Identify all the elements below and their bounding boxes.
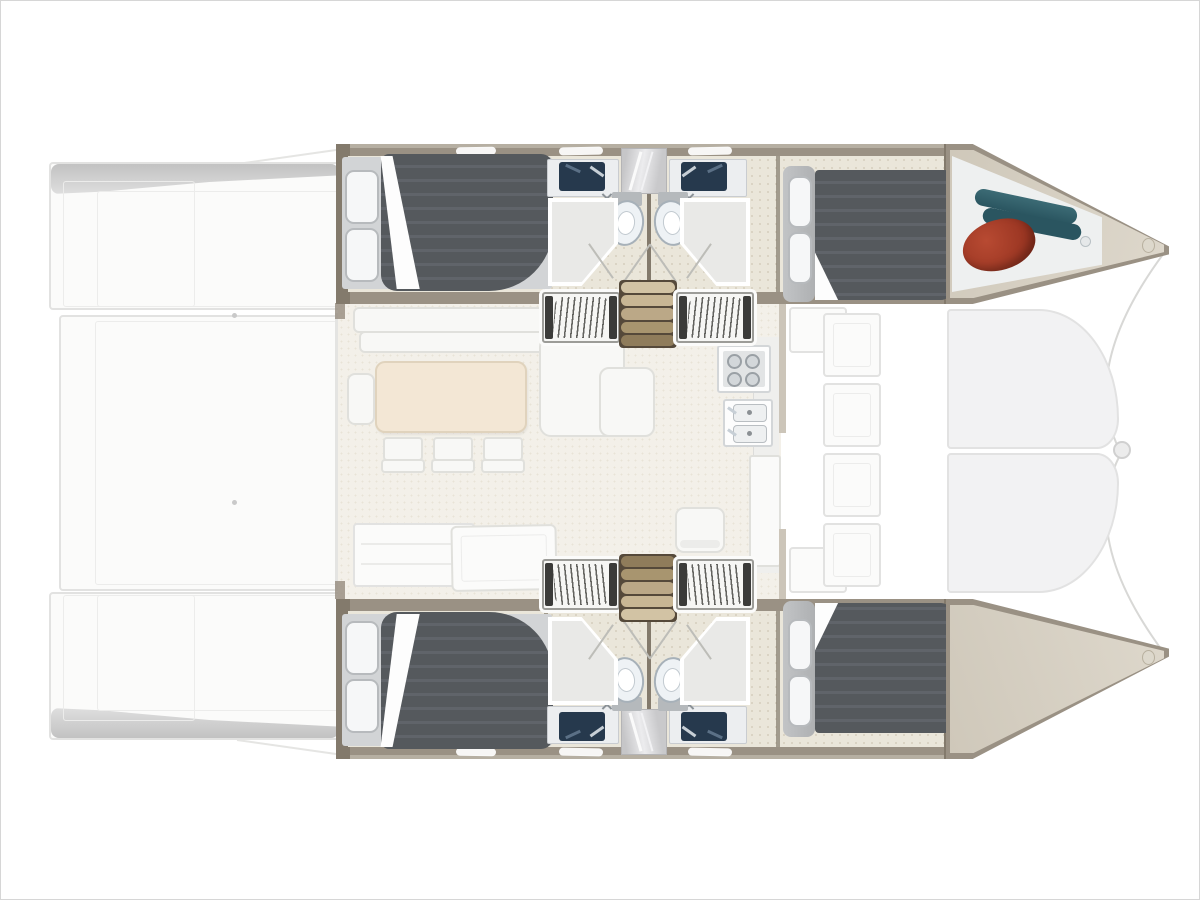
toilet-bowl: [615, 210, 636, 236]
salon-door-track: [335, 313, 338, 589]
sink: [559, 712, 605, 741]
sink: [681, 712, 727, 741]
bow-cargo: [946, 144, 1169, 304]
sink-highlight: [565, 730, 581, 739]
salon-wall-stub-top: [335, 303, 345, 319]
stair-tread: [621, 295, 675, 306]
stair-tread: [621, 335, 675, 346]
pillow: [345, 228, 379, 282]
hull-lower: [336, 599, 1169, 759]
stair-tread: [621, 569, 675, 580]
step-cap: [609, 296, 617, 339]
sink-drain: [747, 410, 752, 415]
pillow: [788, 619, 812, 671]
sink-highlight: [707, 164, 723, 173]
forward-cabin-bed: [776, 144, 956, 304]
faucet: [590, 166, 605, 178]
hull-upper: [336, 144, 1169, 304]
sink-highlight: [565, 164, 581, 173]
duvet: [815, 170, 951, 300]
toilet-bowl: [661, 210, 682, 236]
step-cap: [545, 296, 553, 339]
mirror-streak: [629, 712, 643, 751]
dining-chair: [433, 437, 473, 473]
door-swing: [649, 621, 677, 660]
mirror-streak: [641, 151, 654, 190]
mirror-streak: [629, 151, 643, 190]
faucet: [682, 726, 697, 738]
salon-single-seat: [675, 507, 725, 553]
step-cap: [679, 563, 687, 606]
wooden-staircase: [619, 280, 677, 348]
step-cap: [743, 296, 751, 339]
aft-cabin-bed: [336, 599, 556, 759]
pillow: [788, 675, 812, 727]
bow: [946, 599, 1169, 759]
step-louvres: [687, 297, 744, 338]
dining-chair: [483, 437, 523, 473]
companionway-set-lower: [542, 558, 750, 622]
bow-tip-fitting: [1142, 650, 1155, 665]
stove-burner: [745, 354, 760, 369]
sink-drain: [747, 431, 752, 436]
louvred-steps-left: [542, 292, 620, 343]
pillow: [345, 679, 379, 733]
step-louvres: [553, 297, 610, 338]
chair-seat: [483, 437, 523, 461]
bow-tip-fitting: [1142, 238, 1155, 253]
companionway-set-upper: [542, 280, 750, 344]
stove-burner: [745, 372, 760, 387]
chair-back: [381, 459, 425, 473]
chair-seat: [383, 437, 423, 461]
chair-seat: [433, 437, 473, 461]
stair-tread: [621, 582, 675, 593]
salon: [1, 1, 1200, 900]
sink-highlight: [707, 730, 723, 739]
mirror-streak: [641, 712, 654, 751]
wooden-staircase: [619, 554, 677, 622]
duvet: [815, 603, 951, 733]
bow: [946, 144, 1169, 304]
galley-sink-unit: [723, 399, 773, 447]
louvred-steps-right: [676, 292, 754, 343]
step-cap: [609, 563, 617, 606]
step-louvres: [553, 564, 610, 605]
pillow: [345, 170, 379, 224]
galley-stove: [717, 345, 771, 393]
door-swing: [623, 621, 651, 660]
louvred-steps-right: [676, 559, 754, 610]
galley-cabinet: [749, 455, 781, 567]
faucet: [590, 726, 605, 738]
mirror-column: [621, 148, 667, 194]
dining-bench: [347, 373, 375, 425]
stair-tread: [621, 308, 675, 319]
gear-end-cap: [1080, 236, 1091, 247]
step-cap: [743, 563, 751, 606]
salon-sofa-back: [353, 307, 547, 333]
pillow: [788, 176, 812, 228]
aft-cabin-bed: [336, 144, 556, 304]
sink: [559, 162, 605, 191]
seat-back-line: [680, 540, 720, 548]
step-cap: [679, 296, 687, 339]
sink: [681, 162, 727, 191]
toilet-bowl: [661, 667, 682, 693]
stair-tread: [621, 609, 675, 620]
door-swing: [623, 244, 651, 283]
stove-burner: [727, 372, 742, 387]
salon-forward-wall-upper: [779, 303, 786, 433]
stair-tread: [621, 322, 675, 333]
chair-back: [431, 459, 475, 473]
floor-plan-canvas: [0, 0, 1200, 900]
step-louvres: [687, 564, 744, 605]
pillow: [788, 232, 812, 284]
pillow: [345, 621, 379, 675]
stair-tread: [621, 556, 675, 567]
door-swing: [649, 244, 677, 283]
salon-sofa-seat: [359, 331, 565, 353]
bow-deck-inner: [950, 605, 1164, 753]
forward-cabin-bed: [776, 599, 956, 759]
faucet: [682, 166, 697, 178]
chair-back: [481, 459, 525, 473]
salon-chaise-extension: [599, 367, 655, 437]
mirror-column: [621, 709, 667, 755]
salon-forward-wall-lower: [779, 529, 786, 599]
salon-wall-stub-bottom: [335, 581, 345, 599]
bathroom: [544, 599, 754, 759]
stair-tread: [621, 596, 675, 607]
step-cap: [545, 563, 553, 606]
shower-floor: [552, 202, 614, 282]
stove-burner: [727, 354, 742, 369]
louvred-steps-left: [542, 559, 620, 610]
dining-table: [375, 361, 527, 433]
toilet-bowl: [615, 667, 636, 693]
dining-chair: [383, 437, 423, 473]
chart-desk-inner: [461, 534, 548, 581]
stair-tread: [621, 282, 675, 293]
